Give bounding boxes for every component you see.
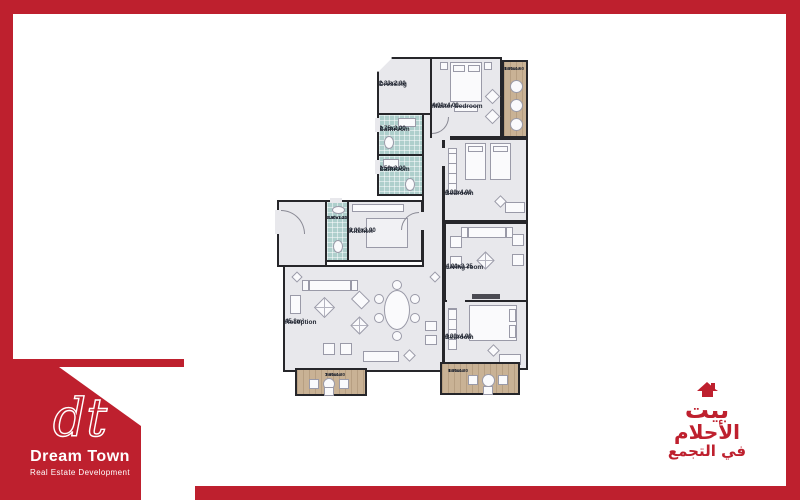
furniture-pillow	[468, 146, 483, 152]
room-dims: 2.75x2.00	[379, 126, 406, 133]
furniture-pillow	[509, 309, 516, 322]
furniture-terrace-chair	[339, 379, 349, 389]
dt-monogram-text: dt	[53, 390, 107, 446]
furniture-plant	[403, 349, 416, 362]
furniture-side-table	[350, 316, 368, 334]
door-gap-kitchen	[419, 212, 425, 230]
furniture-desk	[505, 202, 525, 213]
room-dims: 4.00x1.50	[504, 66, 524, 71]
room-dims: 3.90x1.22	[327, 215, 347, 220]
furniture-dining-chair	[392, 280, 402, 290]
room-terrace-bottom-right: Terrace 4.00x1.30	[440, 362, 520, 395]
room-kitchen: Kitchen 3.00x3.90	[347, 200, 423, 262]
room-dims: 4.00x4.00	[445, 190, 472, 197]
room-dims: 3.60x1.30	[325, 372, 345, 377]
furniture-pillow	[509, 325, 516, 338]
furniture-sink	[332, 206, 345, 214]
furniture-nightstand	[484, 62, 492, 70]
furniture-sofa	[363, 351, 399, 362]
flyer-canvas: dt Dream Town Real Estate Development بي…	[0, 0, 800, 500]
furniture-terrace-chair	[309, 379, 319, 389]
furniture-sofa-arm	[302, 280, 309, 291]
brand-name: Dream Town	[6, 448, 154, 466]
room-bathroom-2: Bathroom 2.50x2.00	[377, 154, 424, 196]
furniture-armchair	[290, 295, 301, 314]
room-dims: 4.00x3.25	[446, 264, 473, 271]
furniture-double-bed	[450, 62, 482, 102]
room-dims: 45.8m²	[285, 319, 304, 326]
room-terrace-top: Terrace 4.00x1.50	[502, 60, 528, 138]
furniture-armchair	[425, 321, 437, 331]
room-dims: 4.00x4.00	[432, 103, 459, 110]
room-dims: 3.00x3.90	[349, 228, 376, 235]
furniture-armchair	[340, 343, 352, 355]
furniture-dining-chair	[374, 294, 384, 304]
furniture-tv-unit	[472, 294, 500, 299]
furniture-dining-chair	[410, 294, 420, 304]
furniture-double-bed	[469, 305, 517, 341]
furniture-wardrobe	[448, 308, 457, 350]
furniture-dining-table	[384, 290, 410, 330]
furniture-dining-chair	[392, 331, 402, 341]
furniture-loveseat	[351, 290, 370, 309]
furniture-single-bed	[490, 143, 511, 180]
furniture-plant-pot	[510, 118, 523, 131]
furniture-armchair	[450, 236, 462, 248]
dt-monogram-icon: dt	[48, 390, 112, 446]
furniture-plant-pot	[510, 80, 523, 93]
room-bedroom-mid: Bedroom 4.00x4.00	[443, 138, 528, 222]
furniture-sofa	[309, 280, 351, 291]
furniture-pillow	[493, 146, 508, 152]
furniture-pillow	[453, 65, 465, 72]
furniture-plant	[429, 271, 440, 282]
furniture-terrace-chair	[468, 375, 478, 385]
furniture-toilet	[405, 178, 415, 191]
furniture-armchair	[512, 234, 524, 246]
brand-tagline: Real Estate Development	[6, 468, 154, 477]
furniture-terrace-chair	[498, 375, 508, 385]
arabic-line-3: في التجمع	[648, 443, 766, 460]
furniture-armchair	[323, 343, 335, 355]
door-gap-bathroom-3	[330, 198, 342, 203]
furniture-wardrobe	[448, 148, 457, 194]
furniture-armchair	[485, 89, 501, 105]
furniture-toilet	[384, 136, 394, 149]
furniture-toilet	[333, 240, 343, 253]
arabic-line-2: الأحلام	[648, 422, 766, 443]
arabic-slogan: بيت الأحلام في التجمع	[648, 381, 766, 460]
room-dressing: Dressing 2.33x2.00	[377, 57, 432, 115]
furniture-armchair	[512, 254, 524, 266]
room-reception: Reception 45.8m²	[283, 265, 444, 372]
furniture-terrace-chair	[324, 387, 334, 396]
furniture-sofa	[468, 227, 506, 238]
furniture-nightstand	[440, 62, 448, 70]
room-dims: 2.50x2.00	[379, 166, 406, 173]
room-terrace-bottom-left: Terrace 3.60x1.30	[295, 368, 367, 396]
door-gap-corridor	[424, 262, 442, 268]
room-bedroom-bottom: Bedroom 4.00x4.00	[443, 300, 528, 370]
room-dims: 4.00x4.00	[445, 334, 472, 341]
room-bathroom-3: Bathroom 3.90x1.22	[325, 200, 349, 262]
furniture-dining-chair	[410, 313, 420, 323]
arabic-line-1: بيت	[648, 398, 766, 422]
door-gap-bedroom-bottom	[447, 297, 465, 303]
room-bathroom-1: Bathroom 2.75x2.00	[377, 113, 424, 156]
furniture-plant-pot	[510, 99, 523, 112]
furniture-center-table	[314, 297, 335, 318]
room-dims: 4.00x1.30	[448, 368, 468, 373]
door-gap-bathroom-1	[375, 118, 380, 132]
furniture-sofa-arm	[461, 227, 468, 238]
room-dims: 2.33x2.00	[379, 81, 406, 88]
furniture-plant	[291, 271, 302, 282]
furniture-pillow	[468, 65, 480, 72]
furniture-armchair	[485, 109, 501, 125]
furniture-terrace-chair	[483, 386, 493, 395]
door-gap-master	[432, 134, 450, 140]
door-gap-bathroom-2	[375, 160, 380, 174]
furniture-kitchen-counter	[352, 204, 404, 212]
furniture-armchair	[425, 335, 437, 345]
furniture-chair	[487, 344, 500, 357]
door-gap-entry	[275, 210, 280, 234]
furniture-dining-chair	[374, 313, 384, 323]
brand-logo: dt Dream Town Real Estate Development	[6, 390, 154, 477]
furniture-single-bed	[465, 143, 486, 180]
room-living: Living room 4.00x3.25	[444, 222, 528, 302]
furniture-sofa-arm	[351, 280, 358, 291]
door-gap-bedroom-mid	[441, 148, 447, 166]
